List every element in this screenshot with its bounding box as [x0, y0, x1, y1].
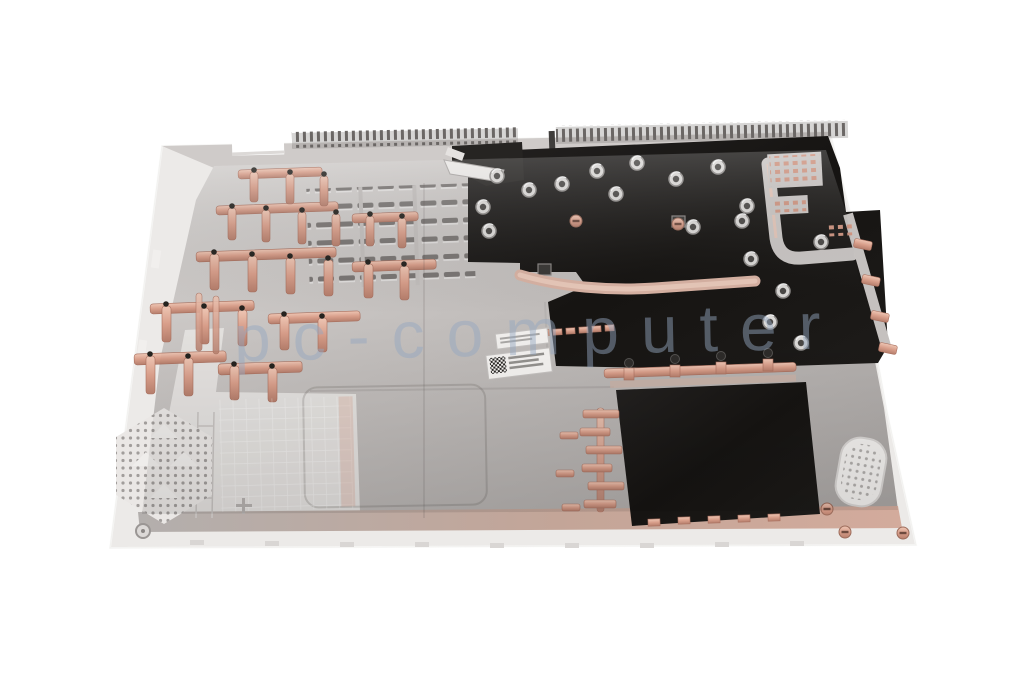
laptop-bottom-case-illustration — [0, 0, 1024, 680]
top-edge-notch-rim — [232, 152, 284, 154]
corner-screw-boss — [136, 524, 150, 538]
corner-copper-screw — [897, 527, 909, 539]
product-photo: pc-computer — [0, 0, 1024, 680]
qr-code — [489, 356, 507, 374]
battery-bay-grid — [219, 396, 356, 511]
top-edge-dark-slot — [549, 131, 556, 151]
